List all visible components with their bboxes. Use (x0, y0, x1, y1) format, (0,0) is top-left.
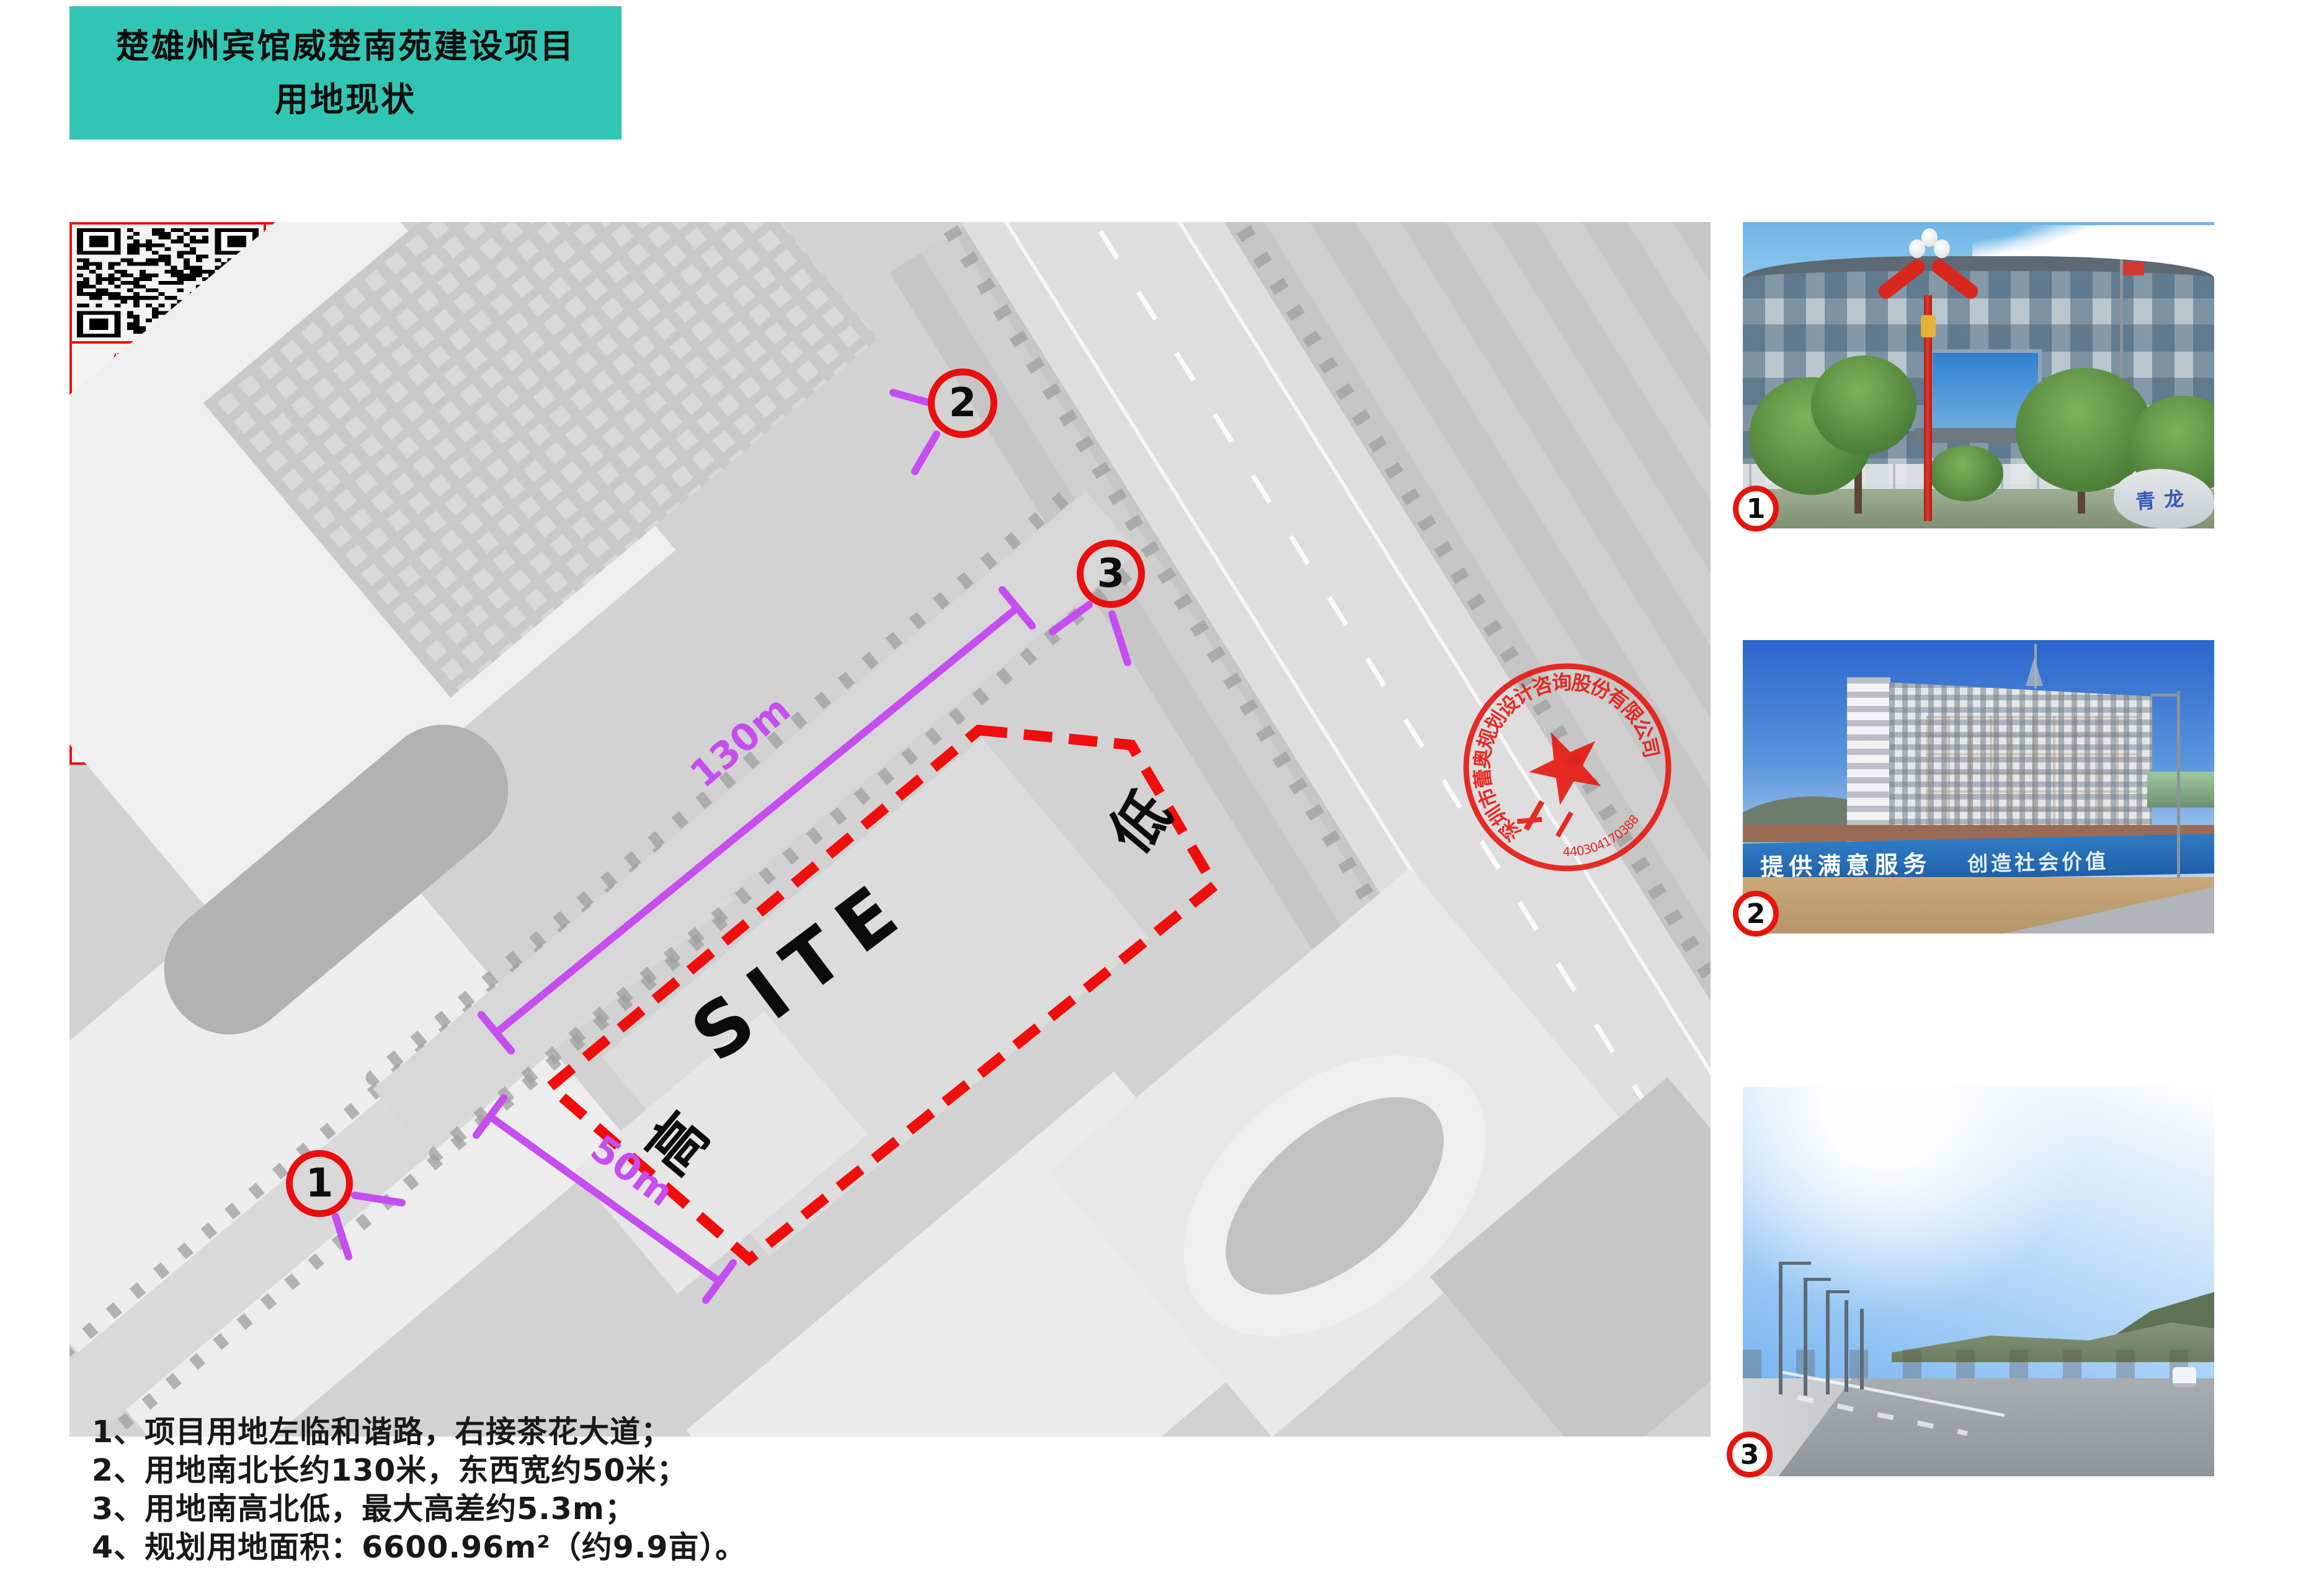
note-line-2: 2、用地南北长约130米，东西宽约50米； (92, 1451, 1270, 1490)
seal-mark (1517, 817, 1542, 824)
street-light-arm (1804, 1278, 1831, 1281)
street-light-pole (1804, 1278, 1807, 1396)
hoarding-text-2: 创造社会价值 (1967, 845, 2109, 878)
scaffolding (1926, 716, 2137, 840)
photo-badge-3: 3 (1727, 1432, 1773, 1478)
dim-tick (706, 1263, 733, 1300)
planning-document-page: 楚雄州宾馆威楚南苑建设项目 用地现状 (0, 0, 2319, 1596)
photo-badge-1: 1 (1733, 486, 1779, 532)
street-light-arm (1779, 1262, 1811, 1265)
note-line-4: 4、规划用地面积：6600.96m²（约9.9亩）。 (92, 1528, 1270, 1567)
lamp-bulb (1934, 239, 1950, 258)
site-photo-3 (1743, 1087, 2214, 1476)
street-light-pole (1845, 1300, 1848, 1392)
satellite-map: SITE 低 高 130m 50m 1 2 3 深圳市蕾奥规划设计咨询股份有限公… (69, 222, 1711, 1437)
viewpoint-marker-1: 1 (286, 1150, 353, 1217)
note-line-3: 3、用地南高北低，最大高差约5.3m； (92, 1490, 1270, 1528)
marker3-leader (1053, 605, 1089, 631)
marker2-leader (893, 393, 927, 402)
street-light-pole (1826, 1290, 1830, 1394)
sheet-title: 用地现状 (275, 73, 416, 127)
tree (1811, 355, 1916, 455)
seal-star-icon (1518, 717, 1613, 811)
dim-tick (476, 1098, 504, 1135)
site-photo-2: 提供满意服务 创造社会价值 (1743, 640, 2214, 934)
antenna-lattice (2026, 658, 2043, 686)
company-seal: 深圳市蕾奥规划设计咨询股份有限公司 4403041703880 (1456, 656, 1679, 879)
lamp-collar (1921, 315, 1936, 337)
photo-badge-2: 2 (1733, 891, 1779, 937)
stone-text: 青龙 (2134, 483, 2193, 515)
shrub (1929, 445, 2003, 501)
marker2-leader (915, 434, 937, 471)
marker3-leader (1112, 614, 1128, 662)
street-light-pole (1860, 1309, 1864, 1389)
project-title: 楚雄州宾馆威楚南苑建设项目 (116, 20, 576, 73)
street-light-pole (2177, 691, 2180, 878)
street-light-arm (2151, 693, 2180, 697)
green-building (2147, 772, 2214, 808)
car (2173, 1367, 2196, 1387)
viewpoint-marker-2: 2 (928, 368, 997, 438)
marker1-leader (355, 1195, 402, 1203)
building-end-face (1847, 677, 1890, 845)
viewpoint-marker-3: 3 (1077, 540, 1145, 608)
dimension-lines (336, 393, 1128, 1300)
seal-mark (1524, 800, 1545, 831)
red-flag (2123, 262, 2144, 275)
site-photo-1: 青龙 (1743, 222, 2214, 528)
seal-mark (1556, 811, 1573, 837)
street-light-arm (1826, 1290, 1849, 1293)
title-block: 楚雄州宾馆威楚南苑建设项目 用地现状 (69, 6, 621, 140)
street-light-pole (1779, 1262, 1783, 1394)
marker1-leader (336, 1216, 349, 1257)
